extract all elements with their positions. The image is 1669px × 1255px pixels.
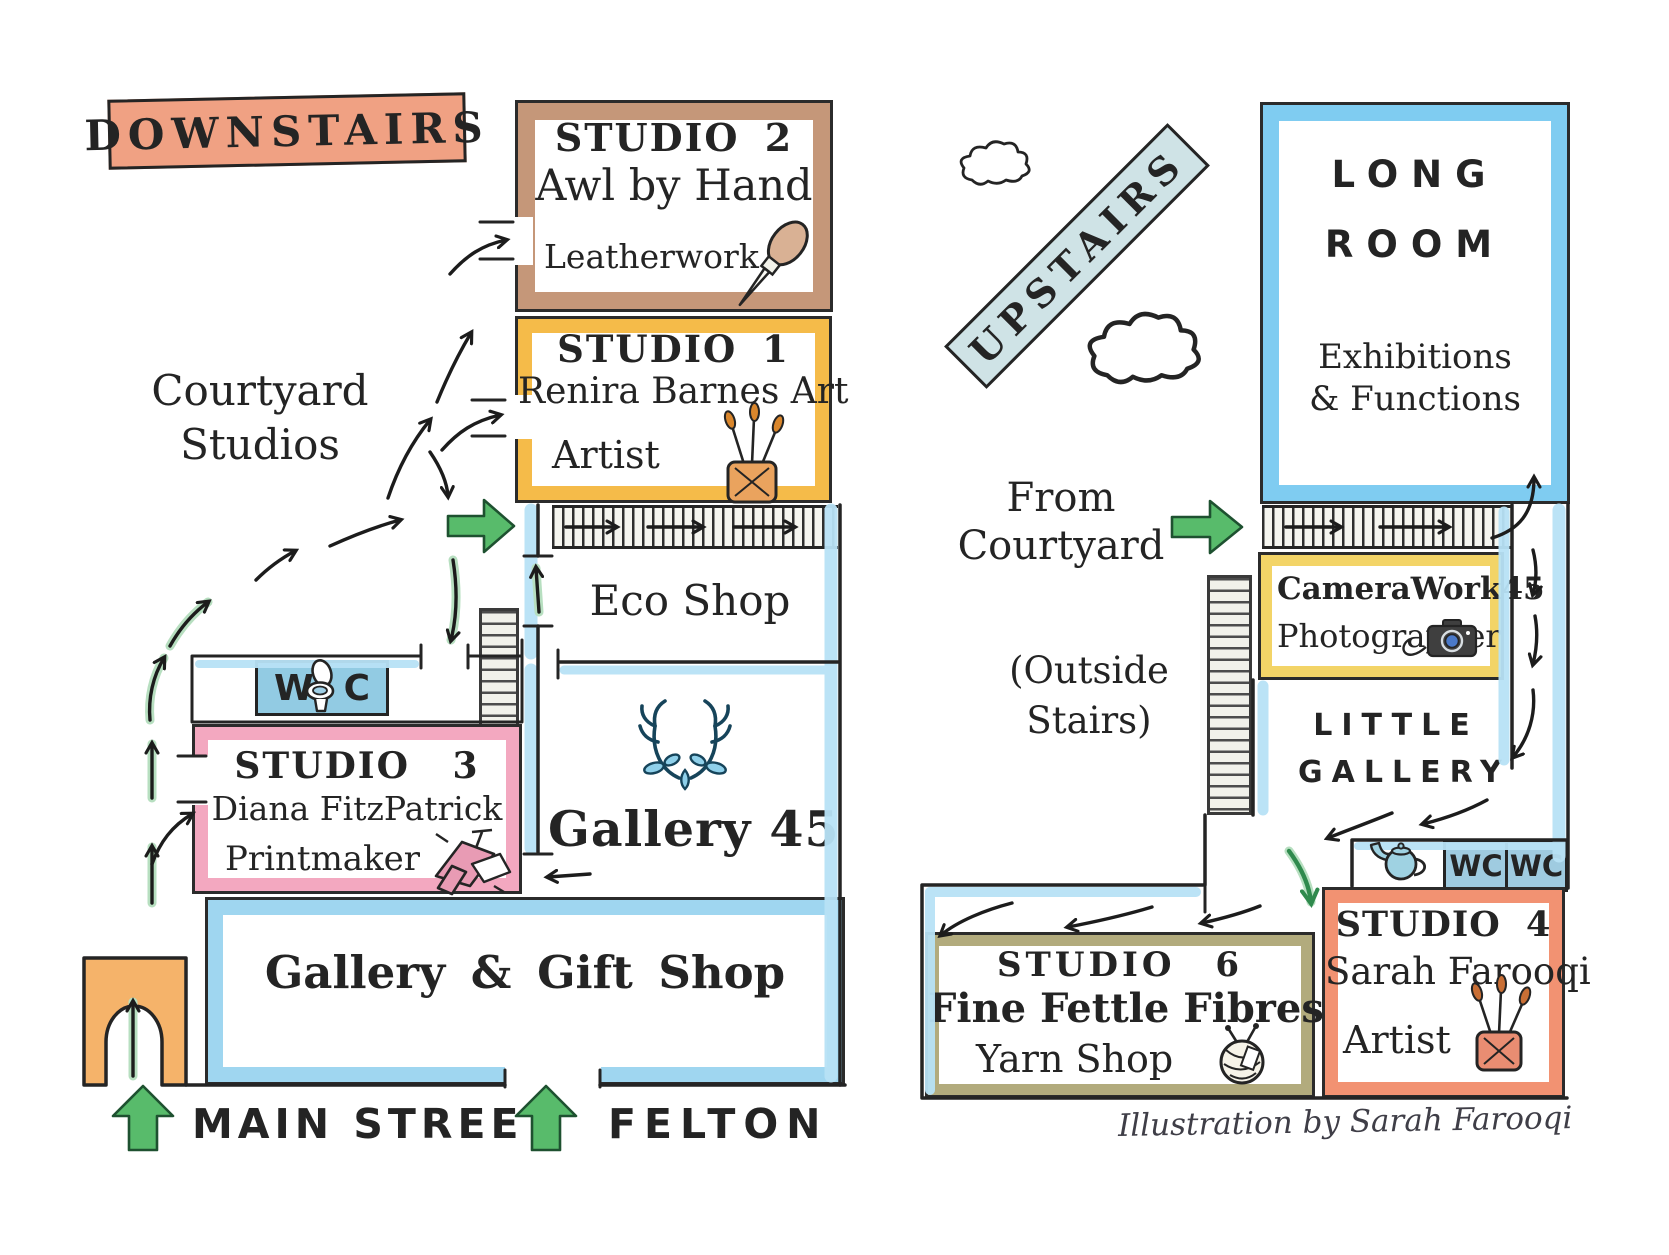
studio2-title: STUDIO 2 xyxy=(518,115,830,160)
long-room-sub1: Exhibitions xyxy=(1263,337,1567,377)
long-room-title2: ROOM xyxy=(1263,223,1567,266)
gift-shop-entrance-gap xyxy=(505,1063,601,1087)
courtyard-studios-line2: Studios xyxy=(148,418,372,472)
illustration-credit: Illustration by Sarah Farooqi xyxy=(1118,1100,1573,1144)
studio4-name: Sarah Farooqi xyxy=(1325,950,1562,993)
studio6-craft: Yarn Shop xyxy=(976,1037,1173,1081)
room-gallery-gift-shop: Gallery & Gift Shop xyxy=(205,897,845,1085)
upstairs-label: UPSTAIRS xyxy=(944,123,1210,389)
courtyard-studios-label: Courtyard Studios xyxy=(148,364,372,472)
studio3-name: Diana FitzPatrick xyxy=(195,789,519,828)
little-gallery-label: LITTLE GALLERY xyxy=(1298,702,1494,796)
green-arrow-walkway-upstairs xyxy=(1172,501,1242,553)
from-courtyard-label: From Courtyard xyxy=(952,474,1170,570)
studio3-title: STUDIO 3 xyxy=(195,745,519,787)
room-studio-4: STUDIO 4 Sarah Farooqi Artist xyxy=(1322,887,1565,1098)
stairs-upstairs xyxy=(1207,575,1252,815)
teapot-icon xyxy=(1371,843,1425,879)
studio6-title: STUDIO 6 xyxy=(928,945,1312,985)
stairs-downstairs xyxy=(479,608,519,742)
room-long-room: LONG ROOM Exhibitions & Functions xyxy=(1260,102,1570,504)
wc-sign-upstairs-right: WC xyxy=(1505,840,1568,892)
gift-shop-label: Gallery & Gift Shop xyxy=(208,946,842,999)
green-curve-arrow-studio4 xyxy=(1289,851,1311,902)
wc-upstairs-left-text: WC xyxy=(1449,849,1502,883)
wc-letter-w: W xyxy=(274,668,314,709)
felton-label: FELTON xyxy=(608,1100,829,1148)
room-studio-6: STUDIO 6 Fine Fettle Fibres Yarn Shop xyxy=(925,932,1315,1098)
room-studio-1: STUDIO 1 Renira Barnes Art Artist xyxy=(515,316,832,503)
camerawork-craft: Photographer xyxy=(1277,617,1501,655)
wc-sign-upstairs-left: WC xyxy=(1443,840,1509,892)
studio2-craft: Leatherwork xyxy=(544,237,759,276)
studio3-craft: Printmaker xyxy=(225,839,420,879)
little-gallery-line2: GALLERY xyxy=(1298,749,1494,796)
studio2-name: Awl by Hand xyxy=(518,161,830,211)
outside-stairs-line1: (Outside xyxy=(1000,646,1178,696)
studio4-craft: Artist xyxy=(1343,1018,1451,1062)
studio6-name: Fine Fettle Fibres xyxy=(928,985,1312,1032)
downstairs-label-text: DOWNSTAIRS xyxy=(84,102,490,159)
wc-upstairs-right-text: WC xyxy=(1510,849,1563,883)
green-arrow-walkway-downstairs xyxy=(448,500,514,552)
from-courtyard-line2: Courtyard xyxy=(952,522,1170,570)
wc-letter-c: C xyxy=(344,668,370,709)
gallery45-floorplan-map: DOWNSTAIRS Courtyard Studios STUDIO 2 Aw… xyxy=(0,0,1669,1255)
room-studio-2: STUDIO 2 Awl by Hand Leatherwork xyxy=(515,100,833,312)
gallery45-label: Gallery 45 xyxy=(548,800,840,858)
downstairs-label: DOWNSTAIRS xyxy=(107,92,466,169)
long-room-title1: LONG xyxy=(1263,153,1567,196)
studio4-title: STUDIO 4 xyxy=(1325,904,1562,945)
camerawork-name: CameraWork45 xyxy=(1277,571,1545,607)
antlers-icon xyxy=(640,701,730,789)
upstairs-label-text: UPSTAIRS xyxy=(960,139,1194,373)
courtyard-studios-line1: Courtyard xyxy=(148,364,372,418)
eco-shop-label: Eco Shop xyxy=(560,576,820,625)
walkway-downstairs xyxy=(552,505,838,549)
room-studio-3: STUDIO 3 Diana FitzPatrick Printmaker xyxy=(192,724,522,894)
walkway-upstairs xyxy=(1262,505,1512,549)
studio1-title: STUDIO 1 xyxy=(518,327,829,371)
green-arrow-street-left xyxy=(113,1086,173,1150)
little-gallery-line1: LITTLE xyxy=(1298,702,1494,749)
studio1-craft: Artist xyxy=(552,433,660,477)
room-camerawork45: CameraWork45 Photographer xyxy=(1258,552,1504,680)
wc-sign-downstairs: W C xyxy=(255,660,389,716)
from-courtyard-line1: From xyxy=(952,474,1170,522)
studio1-name: Renira Barnes Art xyxy=(518,371,829,412)
outside-stairs-line2: Stairs) xyxy=(1000,696,1178,746)
long-room-sub2: & Functions xyxy=(1263,379,1567,419)
studio2-door-gap xyxy=(513,217,533,265)
outside-stairs-label: (Outside Stairs) xyxy=(1000,646,1178,746)
street-arch xyxy=(84,958,186,1085)
main-street-label: MAIN STREET xyxy=(192,1100,556,1148)
